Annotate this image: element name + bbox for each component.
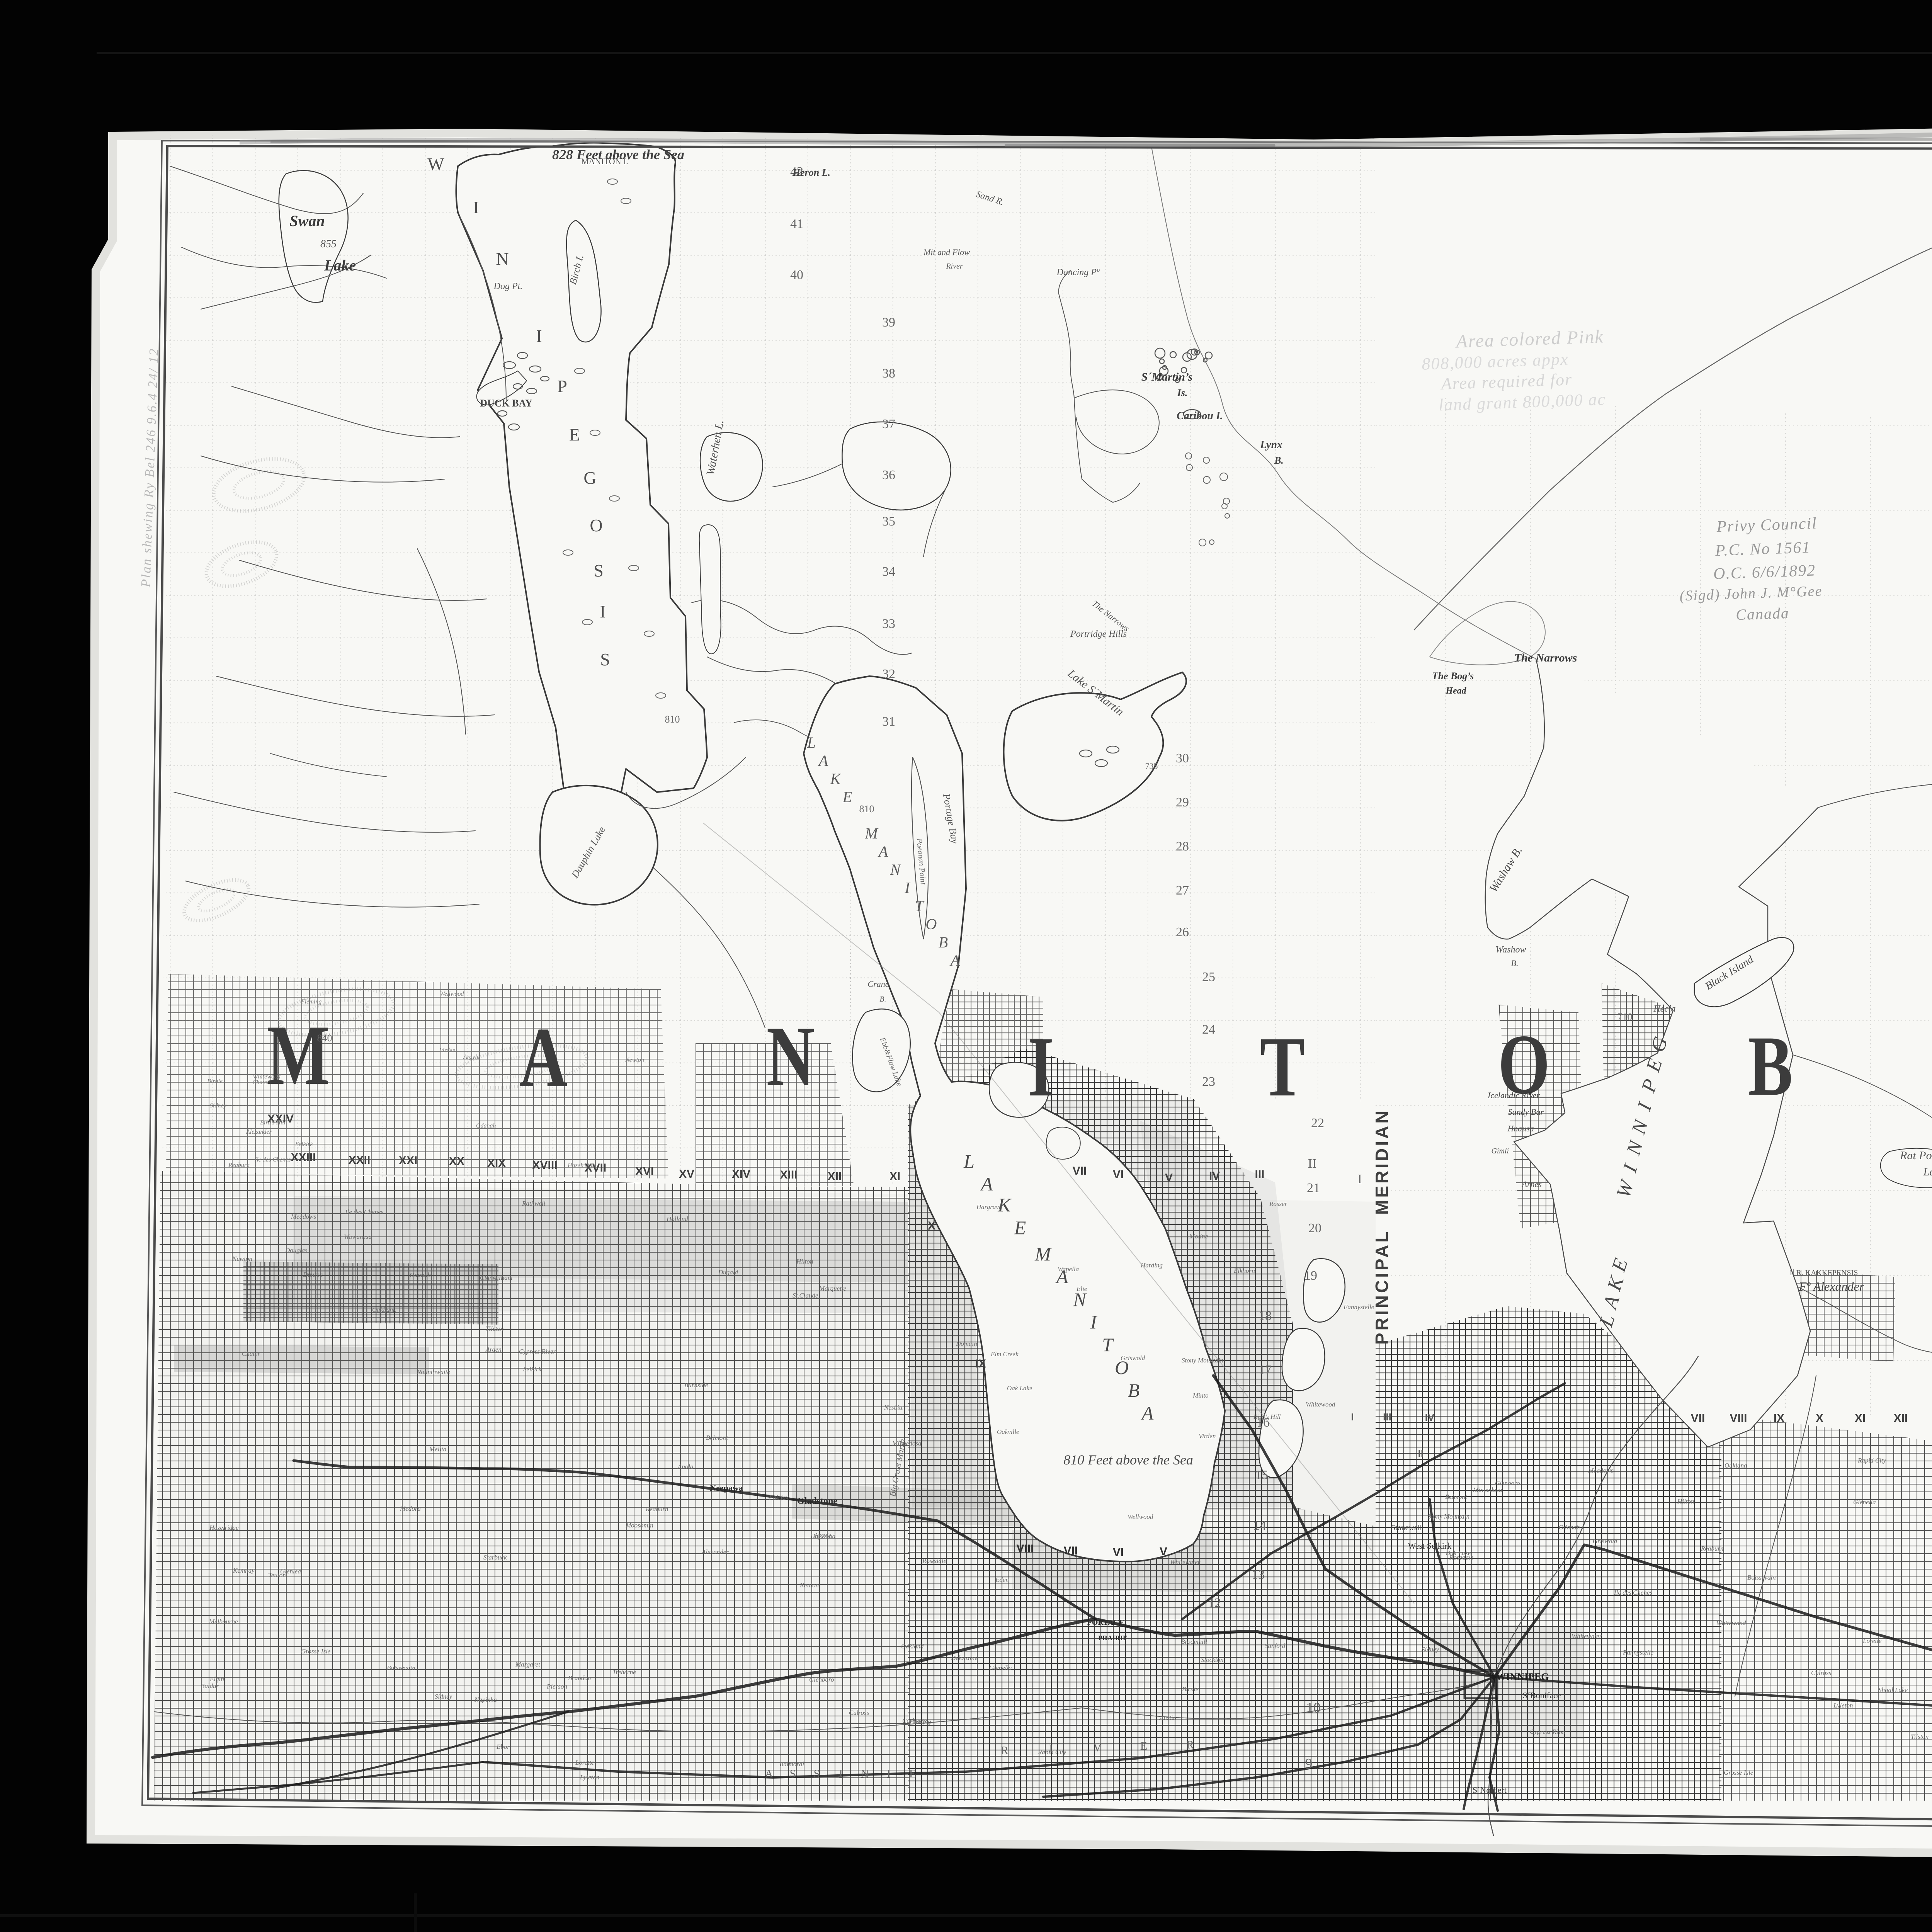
svg-text:Lynx: Lynx (1260, 439, 1282, 451)
svg-text:Fairfax: Fairfax (769, 1494, 789, 1501)
svg-text:Moline: Moline (1189, 1233, 1208, 1240)
svg-text:X: X (928, 1219, 935, 1232)
svg-text:Fº Alexander: Fº Alexander (1799, 1279, 1864, 1293)
svg-text:A: A (949, 952, 960, 969)
svg-text:S: S (790, 1767, 796, 1780)
svg-text:VIII: VIII (1730, 1412, 1747, 1425)
svg-text:Ile des Chenes: Ile des Chenes (345, 1208, 384, 1216)
svg-text:IV: IV (1425, 1412, 1435, 1423)
svg-text:Starbuck: Starbuck (483, 1554, 507, 1561)
svg-text:Meadows: Meadows (1588, 1467, 1614, 1474)
svg-text:A: A (878, 843, 888, 860)
svg-text:Ile des Chenes: Ile des Chenes (1614, 1589, 1653, 1596)
svg-text:River: River (946, 262, 963, 270)
svg-text:T: T (1102, 1334, 1114, 1355)
svg-text:35: 35 (882, 514, 895, 529)
svg-text:VIII: VIII (1016, 1543, 1034, 1555)
svg-text:Belmont: Belmont (1445, 1493, 1468, 1500)
svg-text:A: A (980, 1173, 993, 1195)
svg-text:O: O (590, 515, 602, 535)
svg-text:Kemnay: Kemnay (233, 1567, 255, 1574)
svg-text:PRAIRIE: PRAIRIE (1098, 1634, 1128, 1642)
svg-text:810: 810 (859, 803, 874, 815)
svg-text:Alexander: Alexander (701, 1548, 729, 1556)
svg-text:Bird’s Hill: Bird’s Hill (1253, 1413, 1281, 1420)
svg-text:Rosedale: Rosedale (922, 1557, 947, 1565)
svg-text:Oak Lake: Oak Lake (1446, 1549, 1471, 1557)
svg-text:Odanah: Odanah (410, 1271, 431, 1279)
svg-text:Birnie: Birnie (207, 1078, 223, 1085)
svg-text:Swan: Swan (289, 212, 325, 230)
svg-text:V: V (1160, 1545, 1167, 1558)
svg-text:VI: VI (1113, 1168, 1124, 1181)
svg-text:14: 14 (1253, 1519, 1266, 1533)
svg-text:I: I (536, 326, 542, 346)
svg-text:Cypress River: Cypress River (1530, 1728, 1567, 1735)
svg-text:Caribou I.: Caribou I. (1177, 410, 1223, 422)
svg-text:L: L (963, 1150, 975, 1172)
svg-text:M: M (1034, 1243, 1052, 1265)
svg-text:Whitewood: Whitewood (253, 1073, 281, 1080)
svg-text:Elgin: Elgin (209, 1675, 224, 1683)
svg-text:Hazelridge: Hazelridge (567, 1162, 595, 1169)
svg-text:855: 855 (320, 238, 337, 250)
svg-text:L: L (807, 734, 816, 751)
svg-text:Dunrea: Dunrea (303, 1271, 323, 1278)
svg-text:Head: Head (1445, 686, 1466, 696)
svg-text:MANITON I.: MANITON I. (581, 156, 628, 166)
svg-text:W: W (427, 154, 444, 174)
svg-text:Oakbank: Oakbank (372, 1306, 396, 1313)
svg-text:The Narrows: The Narrows (1514, 651, 1577, 664)
svg-text:III: III (1383, 1411, 1391, 1423)
svg-text:B.: B. (879, 995, 886, 1003)
svg-text:Newton: Newton (625, 1057, 644, 1063)
svg-text:Sidney: Sidney (1422, 1646, 1439, 1653)
svg-text:Oakland: Oakland (901, 1643, 924, 1650)
svg-text:I: I (1357, 1172, 1362, 1186)
svg-text:19: 19 (1304, 1269, 1317, 1283)
svg-text:VII: VII (1064, 1544, 1078, 1557)
svg-text:Reaburn: Reaburn (228, 1162, 250, 1168)
svg-text:II: II (1308, 1156, 1317, 1171)
svg-text:Neepawa: Neepawa (710, 1483, 743, 1493)
svg-text:Argyle: Argyle (463, 1054, 480, 1060)
svg-text:Anola: Anola (677, 1463, 694, 1470)
svg-text:Culross: Culross (849, 1709, 869, 1716)
svg-text:32: 32 (882, 667, 895, 681)
svg-text:Lyleton: Lyleton (580, 1774, 600, 1781)
svg-text:XI: XI (889, 1170, 900, 1183)
svg-text:Selkirk: Selkirk (296, 1141, 313, 1148)
svg-text:Glenboro: Glenboro (809, 1676, 834, 1683)
svg-text:PORTAGE: PORTAGE (1087, 1618, 1125, 1627)
svg-text:X: X (1816, 1412, 1823, 1425)
svg-text:XV: XV (679, 1168, 694, 1180)
svg-text:735: 735 (1145, 761, 1158, 771)
svg-text:T: T (1260, 1020, 1305, 1114)
svg-text:Privy Council: Privy Council (1716, 514, 1818, 536)
svg-text:Fleming: Fleming (301, 998, 321, 1005)
svg-text:S´Norbert: S´Norbert (1473, 1785, 1507, 1795)
svg-text:Douglas: Douglas (285, 1247, 308, 1254)
svg-text:Stony Mountain: Stony Mountain (1182, 1357, 1223, 1364)
svg-text:XX: XX (449, 1155, 464, 1168)
svg-text:I: I (904, 879, 910, 896)
svg-text:E: E (569, 425, 580, 444)
svg-text:Wawanesa: Wawanesa (344, 1233, 372, 1240)
svg-text:Hecla: Hecla (1653, 1004, 1675, 1014)
svg-text:St.Claude: St.Claude (793, 1292, 818, 1299)
svg-text:Chater: Chater (242, 1350, 260, 1357)
svg-text:A: A (519, 1010, 567, 1105)
svg-text:39: 39 (882, 315, 895, 330)
svg-text:Reaburn: Reaburn (645, 1505, 668, 1513)
svg-text:Treherne: Treherne (612, 1668, 636, 1676)
svg-text:20: 20 (1308, 1221, 1321, 1235)
svg-text:Cypress River: Cypress River (519, 1348, 556, 1355)
svg-text:S´Martin’s: S´Martin’s (1141, 371, 1193, 383)
svg-text:PRINCIPAL MERIDIAN: PRINCIPAL MERIDIAN (1372, 1109, 1392, 1345)
svg-text:B.: B. (1511, 958, 1519, 968)
svg-text:E: E (909, 1767, 916, 1780)
svg-text:M: M (864, 825, 879, 842)
svg-text:Oak Lake: Oak Lake (1007, 1384, 1032, 1392)
svg-text:Hargrave: Hargrave (976, 1203, 1002, 1211)
svg-text:P.C. No 1561: P.C. No 1561 (1714, 539, 1811, 560)
svg-text:30: 30 (1176, 751, 1189, 765)
svg-text:Clanwilliam: Clanwilliam (480, 1274, 512, 1281)
svg-text:Stockton: Stockton (1201, 1656, 1224, 1663)
svg-text:10: 10 (1306, 1700, 1321, 1716)
svg-text:IV: IV (1209, 1170, 1220, 1182)
svg-text:•: • (1528, 1087, 1532, 1100)
svg-text:XIV: XIV (732, 1168, 750, 1180)
svg-text:21: 21 (1307, 1181, 1320, 1195)
svg-text:Glenella: Glenella (1853, 1498, 1876, 1506)
svg-text:Wellwood: Wellwood (440, 991, 464, 997)
svg-text:XVIII: XVIII (532, 1159, 557, 1172)
svg-text:Stony Mountain: Stony Mountain (1428, 1513, 1469, 1520)
svg-text:R: R (1186, 1738, 1194, 1751)
svg-text:I: I (839, 1767, 843, 1780)
svg-text:38: 38 (882, 366, 895, 381)
svg-text:Rosser: Rosser (1269, 1200, 1287, 1207)
svg-text:Wapella: Wapella (1058, 1265, 1079, 1273)
svg-text:Fleming: Fleming (909, 1718, 931, 1725)
svg-text:Stonewall: Stonewall (1391, 1524, 1422, 1532)
svg-text:B: B (1128, 1379, 1140, 1401)
svg-text:WINNIPEG: WINNIPEG (1496, 1671, 1549, 1682)
svg-text:XVI: XVI (635, 1165, 654, 1178)
svg-text:West Selkirk: West Selkirk (1408, 1541, 1452, 1551)
svg-text:Odanah: Odanah (476, 1122, 496, 1129)
svg-text:Odanah: Odanah (1559, 1524, 1580, 1531)
svg-text:Minnedosa: Minnedosa (892, 1440, 922, 1447)
svg-text:XIX: XIX (487, 1157, 506, 1170)
svg-text:Is.: Is. (1177, 387, 1188, 398)
svg-text:Marquette: Marquette (819, 1285, 847, 1292)
svg-text:29: 29 (1176, 795, 1189, 810)
svg-text:Gimli: Gimli (1491, 1147, 1509, 1155)
svg-text:I: I (600, 602, 605, 621)
svg-text:Portridge Hills: Portridge Hills (1070, 629, 1127, 639)
svg-text:V: V (1165, 1172, 1173, 1184)
svg-text:Moosomin: Moosomin (625, 1522, 653, 1529)
svg-text:Oakville: Oakville (997, 1428, 1019, 1435)
svg-text:Minto: Minto (1192, 1392, 1209, 1399)
svg-text:IX: IX (1774, 1412, 1784, 1425)
svg-text:23: 23 (1202, 1075, 1215, 1089)
svg-text:Elie: Elie (1076, 1285, 1087, 1293)
svg-text:XXIII: XXIII (291, 1151, 316, 1164)
svg-text:K: K (830, 770, 842, 787)
svg-text:Margaret: Margaret (515, 1661, 541, 1668)
svg-text:Kenton: Kenton (799, 1582, 819, 1589)
svg-text:Lorette: Lorette (575, 1759, 594, 1766)
svg-text:Melbourne: Melbourne (209, 1618, 238, 1625)
svg-text:Griswold: Griswold (1121, 1354, 1145, 1362)
svg-text:N: N (766, 1009, 815, 1104)
svg-text:The Bog’s: The Bog’s (1432, 670, 1474, 682)
svg-text:II: II (1418, 1447, 1423, 1459)
svg-text:E: E (1140, 1740, 1147, 1752)
svg-text:M: M (267, 1008, 330, 1103)
svg-text:Crane: Crane (868, 979, 889, 989)
svg-text:Glenella: Glenella (989, 1664, 1012, 1672)
svg-text:840: 840 (317, 1032, 332, 1044)
svg-text:XII: XII (1894, 1412, 1908, 1425)
svg-text:VI: VI (1113, 1546, 1124, 1559)
svg-text:Fannystelle: Fannystelle (1343, 1303, 1374, 1311)
svg-text:O: O (926, 915, 937, 933)
svg-text:Culross: Culross (1811, 1669, 1832, 1677)
svg-text:Medora: Medora (400, 1505, 421, 1512)
svg-text:B.: B. (1274, 455, 1284, 466)
svg-text:Harding: Harding (1140, 1262, 1163, 1269)
svg-text:Sidney: Sidney (210, 1102, 227, 1109)
svg-text:Ile des Chenes: Ile des Chenes (254, 1156, 291, 1163)
svg-text:26: 26 (1176, 925, 1189, 939)
svg-text:710: 710 (1617, 1011, 1633, 1022)
svg-text:Whitewood: Whitewood (1716, 1619, 1746, 1627)
svg-text:S: S (814, 1767, 820, 1780)
svg-text:V: V (1093, 1741, 1102, 1754)
svg-text:B: B (939, 934, 948, 951)
svg-text:Fannystelle: Fannystelle (1622, 1649, 1654, 1656)
svg-text:Lyleton: Lyleton (1833, 1702, 1853, 1709)
svg-text:Rapid City: Rapid City (1857, 1457, 1886, 1464)
svg-text:Hazelridge: Hazelridge (209, 1524, 239, 1531)
svg-text:XI: XI (1855, 1412, 1866, 1425)
svg-text:Rapid City: Rapid City (1037, 1748, 1066, 1756)
svg-text:Bird’s Hill: Bird’s Hill (260, 1119, 286, 1126)
svg-text:Napinka: Napinka (474, 1696, 497, 1703)
svg-text:Virden: Virden (1199, 1432, 1216, 1440)
svg-text:A: A (818, 752, 828, 769)
svg-text:28: 28 (1176, 839, 1189, 854)
svg-text:I: I (1351, 1411, 1354, 1423)
svg-text:810 Feet above the Sea: 810 Feet above the Sea (1063, 1452, 1193, 1468)
svg-text:Hnausa: Hnausa (1507, 1124, 1534, 1133)
svg-text:Birnie: Birnie (1182, 1685, 1199, 1693)
svg-text:41: 41 (790, 217, 803, 231)
svg-text:Whitewood: Whitewood (1306, 1401, 1335, 1408)
svg-text:Melita: Melita (429, 1446, 446, 1453)
svg-text:Dugald: Dugald (718, 1269, 738, 1276)
svg-text:E: E (1014, 1217, 1026, 1238)
svg-text:E: E (842, 788, 852, 806)
svg-text:25: 25 (1202, 970, 1215, 984)
svg-text:Tilston: Tilston (1911, 1733, 1929, 1740)
svg-text:Wellwood: Wellwood (1128, 1513, 1153, 1520)
svg-text:17: 17 (1259, 1363, 1272, 1377)
svg-text:810: 810 (665, 714, 680, 725)
svg-text:S´Boniface: S´Boniface (1523, 1690, 1561, 1700)
svg-text:Broomhill: Broomhill (1181, 1638, 1207, 1645)
svg-text:Shoal Lake: Shoal Lake (1878, 1686, 1908, 1694)
svg-text:Rat Portage: Rat Portage (1900, 1149, 1932, 1162)
svg-text:I: I (1028, 1020, 1054, 1114)
svg-text:Minnedosa: Minnedosa (1473, 1486, 1502, 1493)
svg-text:Chater: Chater (252, 1079, 270, 1086)
svg-text:34: 34 (882, 565, 895, 579)
svg-text:Mit and Flow: Mit and Flow (923, 247, 970, 257)
svg-text:Domain: Domain (956, 1340, 977, 1347)
svg-text:Balmoral: Balmoral (779, 1760, 804, 1768)
svg-text:37: 37 (882, 417, 895, 431)
svg-text:N: N (861, 1767, 869, 1780)
svg-text:Elm Creek: Elm Creek (990, 1350, 1019, 1358)
svg-text:Dancing Pº: Dancing Pº (1056, 267, 1100, 277)
svg-text:Boissevain: Boissevain (1747, 1574, 1776, 1581)
svg-text:13: 13 (1252, 1568, 1265, 1582)
svg-text:Griswold: Griswold (1593, 1537, 1617, 1545)
svg-text:Heron L.: Heron L. (792, 167, 830, 178)
svg-text:Gladstone: Gladstone (797, 1496, 837, 1506)
svg-text:XXI: XXI (399, 1154, 417, 1167)
svg-text:T: T (915, 897, 925, 915)
svg-text:33: 33 (882, 617, 895, 631)
svg-text:Sandy Bar: Sandy Bar (1508, 1107, 1544, 1117)
svg-text:Sanford: Sanford (1265, 1642, 1286, 1650)
svg-text:15: 15 (1255, 1468, 1268, 1482)
svg-text:Elkhorn: Elkhorn (1233, 1267, 1255, 1274)
svg-text:P: P (557, 376, 567, 396)
svg-text:VII: VII (1691, 1412, 1705, 1425)
svg-text:Sidney: Sidney (435, 1693, 452, 1700)
svg-text:Lake: Lake (324, 257, 356, 274)
svg-text:Nesbitt: Nesbitt (884, 1404, 903, 1411)
svg-text:Holland: Holland (666, 1215, 688, 1223)
svg-text:Baldur: Baldur (201, 1682, 219, 1690)
svg-text:I: I (1090, 1311, 1098, 1333)
svg-text:Arden: Arden (485, 1346, 502, 1353)
svg-text:Canada: Canada (1735, 604, 1789, 624)
svg-text:Ebor: Ebor (496, 1743, 510, 1750)
svg-text:S: S (594, 561, 604, 580)
svg-text:I: I (473, 197, 479, 217)
svg-text:Haywood: Haywood (810, 1532, 836, 1540)
svg-text:R: R (1001, 1744, 1009, 1757)
svg-text:Austin: Austin (1159, 1714, 1176, 1721)
svg-text:31: 31 (882, 714, 895, 729)
svg-text:I. R. KAKKEPENSIS: I. R. KAKKEPENSIS (1790, 1269, 1858, 1277)
svg-text:I: I (887, 1767, 891, 1780)
svg-text:DUCK BAY: DUCK BAY (480, 398, 532, 409)
svg-text:Boissevain: Boissevain (387, 1664, 415, 1672)
svg-text:Glenboro: Glenboro (1495, 1480, 1520, 1487)
svg-text:N: N (496, 249, 509, 269)
svg-text:VII: VII (1073, 1165, 1087, 1177)
svg-text:O.C. 6/6/1892: O.C. 6/6/1892 (1713, 561, 1816, 583)
svg-text:Newton: Newton (232, 1255, 252, 1262)
svg-text:XIII: XIII (780, 1168, 797, 1181)
svg-text:Rounthwaite: Rounthwaite (417, 1368, 450, 1376)
svg-text:27: 27 (1176, 883, 1189, 898)
svg-text:Lorette: Lorette (1862, 1637, 1882, 1645)
svg-text:III: III (1255, 1168, 1264, 1181)
svg-text:9: 9 (1305, 1756, 1313, 1772)
svg-text:Tilston: Tilston (486, 1325, 503, 1332)
svg-text:Virden: Virden (439, 1047, 456, 1054)
svg-text:Grosse Isle: Grosse Isle (1724, 1769, 1753, 1776)
svg-text:Pierson: Pierson (546, 1683, 567, 1690)
svg-text:36: 36 (882, 468, 895, 482)
svg-text:40: 40 (790, 268, 803, 282)
svg-text:Hilton: Hilton (1677, 1498, 1694, 1505)
svg-text:Eden: Eden (995, 1576, 1009, 1583)
svg-text:Lake: Lake (1923, 1166, 1932, 1178)
svg-text:N: N (890, 861, 901, 878)
svg-text:Grosse Isle: Grosse Isle (301, 1648, 331, 1655)
svg-text:22: 22 (1311, 1116, 1324, 1130)
svg-text:Whitewater: Whitewater (1571, 1633, 1602, 1640)
svg-text:A: A (1141, 1402, 1154, 1424)
svg-text:24: 24 (1202, 1022, 1215, 1037)
svg-text:G: G (583, 468, 596, 488)
svg-text:Belmont: Belmont (706, 1434, 728, 1441)
svg-text:18: 18 (1259, 1309, 1272, 1323)
svg-text:Alexander: Alexander (246, 1129, 272, 1135)
svg-text:Meadows: Meadows (291, 1213, 316, 1220)
svg-text:S: S (600, 650, 610, 669)
svg-text:Rathwell: Rathwell (522, 1200, 546, 1207)
svg-text:IX: IX (975, 1357, 986, 1370)
svg-text:Arnes: Arnes (1521, 1179, 1542, 1189)
svg-text:A: A (765, 1767, 773, 1780)
svg-text:Burnside: Burnside (684, 1381, 708, 1389)
svg-text:Deloraine: Deloraine (951, 1654, 978, 1662)
svg-text:Whitewater: Whitewater (1170, 1558, 1201, 1566)
svg-text:Reaburn: Reaburn (1701, 1545, 1724, 1552)
svg-text:Glenlea: Glenlea (280, 1568, 301, 1575)
svg-text:XII: XII (828, 1170, 842, 1183)
svg-text:12: 12 (1208, 1596, 1221, 1610)
svg-text:Washow: Washow (1495, 945, 1526, 955)
svg-text:Oakland: Oakland (1725, 1462, 1747, 1469)
svg-text:Hilton: Hilton (796, 1258, 813, 1265)
svg-text:Selkirk: Selkirk (523, 1366, 542, 1373)
svg-text:Brandon: Brandon (568, 1674, 591, 1682)
svg-text:XXII: XXII (349, 1154, 371, 1167)
svg-text:Dog Pt.: Dog Pt. (493, 281, 523, 291)
svg-text:B: B (1748, 1019, 1793, 1114)
